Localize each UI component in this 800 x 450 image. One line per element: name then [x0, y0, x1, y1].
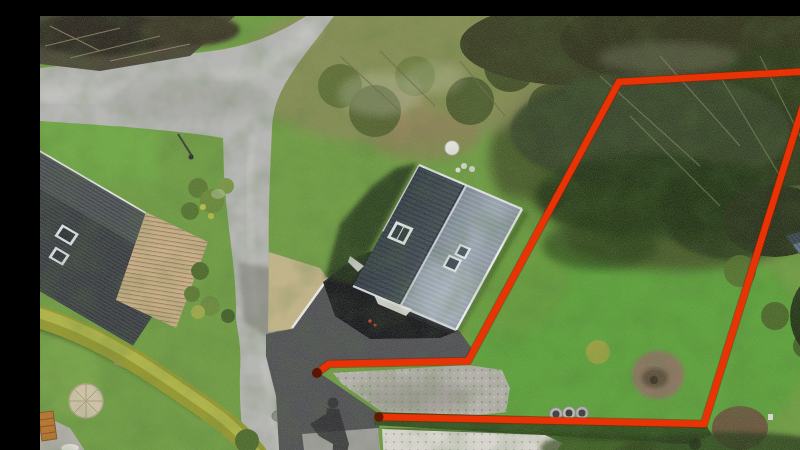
aerial-photo [40, 16, 800, 450]
boundary-vertex-dot [312, 368, 322, 378]
boundary-end-dot [375, 413, 384, 422]
